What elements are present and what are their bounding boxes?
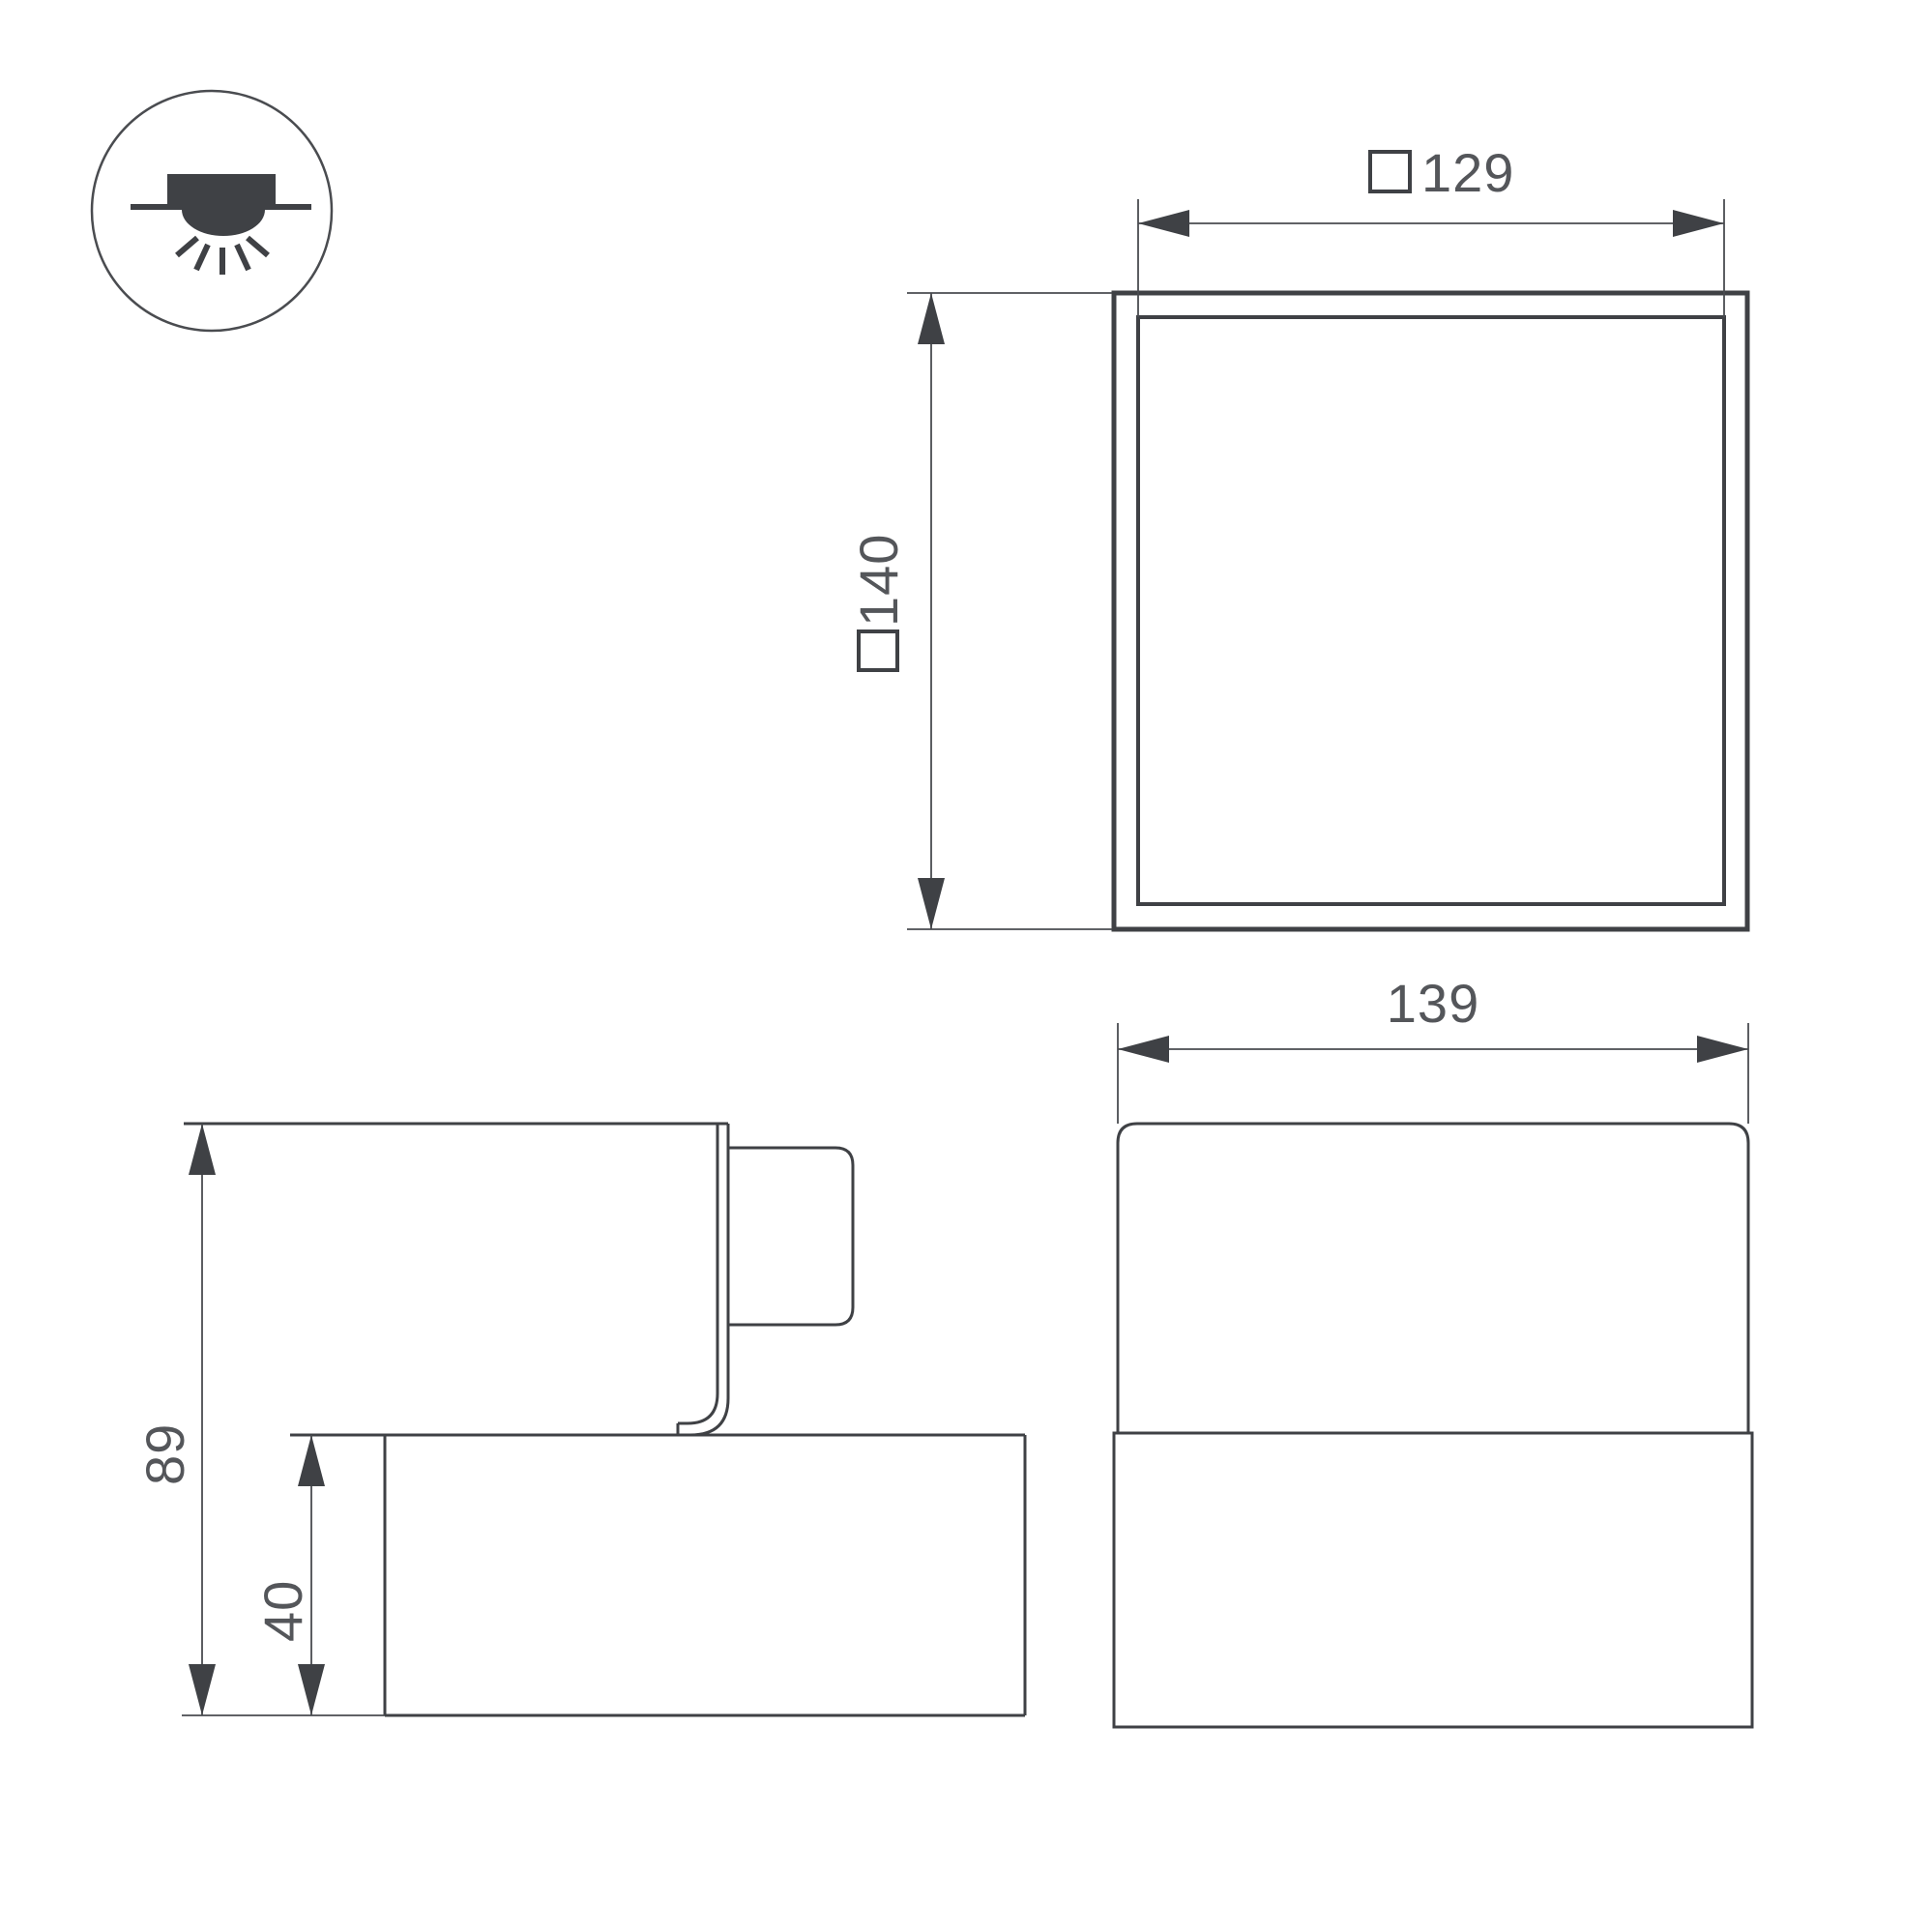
dimension-40: 40 [252,1435,325,1715]
top-view: 129 140 [848,142,1747,929]
bracket-outer-edge [678,1124,728,1435]
arrow-right-icon [1697,1036,1748,1063]
recessed-ceiling-light-icon [92,91,332,331]
arrow-down-icon [918,878,945,929]
side-view: 89 40 [134,1124,1025,1715]
dimension-value: 129 [1421,142,1514,203]
front-head-outline [1118,1124,1748,1433]
dimension-label-129: 129 [1370,142,1514,203]
bracket-inner-edge [678,1124,717,1423]
top-view-inner-square [1138,317,1724,904]
arrow-up-icon [298,1435,325,1486]
arrow-down-icon [189,1664,216,1715]
arrow-right-icon [1673,210,1724,237]
square-symbol-icon [859,631,897,670]
front-view: 139 [1114,973,1752,1727]
dimension-139: 139 [1118,973,1748,1124]
square-symbol-icon [1370,152,1410,191]
dimension-drawing: 129 140 [0,0,1932,1932]
arrow-up-icon [918,293,945,344]
dimension-140: 140 [848,293,1112,929]
dimension-value: 139 [1387,973,1479,1034]
icon-housing-rect [167,174,276,206]
junction-box [728,1148,853,1325]
front-base-box [1114,1433,1752,1727]
top-view-outer-square [1114,293,1747,929]
arrow-up-icon [189,1124,216,1175]
arrow-left-icon [1138,210,1189,237]
dimension-value: 40 [252,1580,313,1642]
mounting-bracket [678,1124,728,1435]
dimension-value: 89 [134,1423,195,1485]
icon-lamp-dome [182,210,265,236]
arrow-down-icon [298,1664,325,1715]
dimension-value: 140 [848,534,909,627]
technical-drawing-canvas: 129 140 [0,0,1932,1932]
arrow-left-icon [1118,1036,1169,1063]
dimension-label-140: 140 [848,534,909,670]
icon-light-rays [177,238,268,275]
